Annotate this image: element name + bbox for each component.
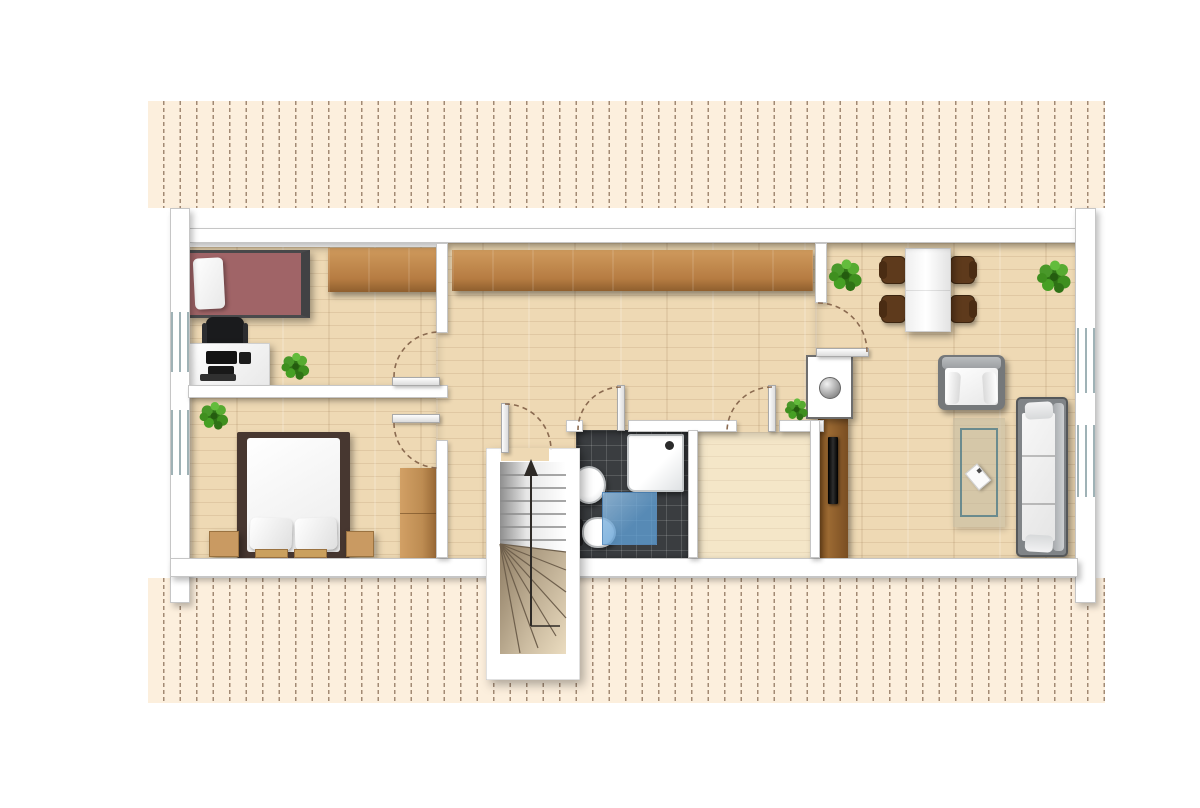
roof-slope-hatch-bottom bbox=[148, 578, 1105, 703]
bed-pillow-right bbox=[294, 517, 337, 550]
desk bbox=[186, 343, 270, 386]
plant-dining-right bbox=[1034, 256, 1074, 298]
tv-panel bbox=[818, 418, 848, 558]
plant-master-bedroom bbox=[197, 399, 231, 433]
wall-bath-top-1 bbox=[566, 420, 583, 432]
armchair-pillow-right bbox=[982, 372, 998, 405]
plant-kids-room bbox=[279, 350, 312, 383]
office-chair-armrest-left bbox=[202, 323, 207, 345]
double-bed bbox=[237, 432, 350, 558]
wall-storage-right bbox=[810, 420, 820, 558]
plant-dining-left bbox=[826, 255, 865, 296]
headboard-slat-left bbox=[255, 549, 288, 558]
bathroom-door bbox=[617, 385, 625, 431]
office-chair-armrest-right bbox=[243, 323, 248, 345]
dining-chair-bottom-right bbox=[950, 295, 975, 323]
plant-icon bbox=[279, 350, 312, 383]
left-window-1 bbox=[171, 312, 189, 372]
shower-tray bbox=[627, 434, 684, 492]
roof-slope-hatch-top bbox=[148, 101, 1105, 208]
headboard-slat-right bbox=[294, 549, 327, 558]
dining-chair-top-right bbox=[950, 256, 975, 284]
bedroom-top-door bbox=[392, 377, 440, 386]
plant-icon bbox=[1034, 256, 1074, 298]
nightstand-right bbox=[346, 531, 374, 557]
nightstand-left bbox=[209, 531, 239, 557]
flat-tv bbox=[828, 437, 838, 504]
computer-speaker bbox=[239, 352, 251, 364]
dining-chair-bottom-left bbox=[881, 295, 906, 323]
winder-staircase bbox=[486, 448, 580, 680]
single-bed bbox=[188, 250, 310, 318]
stairwell-door bbox=[501, 403, 509, 453]
living-room-door bbox=[816, 348, 869, 357]
keyboard bbox=[206, 351, 237, 364]
rug bbox=[953, 418, 1005, 527]
remote-control bbox=[976, 468, 982, 474]
bedroom-bottom-door bbox=[392, 414, 440, 423]
floor-storage-room bbox=[698, 432, 812, 558]
wall-bedroom-separator bbox=[188, 385, 448, 398]
wall-bottom bbox=[170, 558, 1078, 577]
chimney bbox=[806, 355, 853, 419]
sofa-seat-divider-2 bbox=[1022, 503, 1055, 505]
wall-bath-right bbox=[688, 430, 698, 558]
right-window-2 bbox=[1077, 425, 1095, 497]
wardrobe-divider bbox=[400, 513, 437, 514]
wall-right bbox=[1075, 208, 1096, 603]
plant-icon bbox=[197, 399, 231, 433]
sofa-seat-divider-1 bbox=[1022, 455, 1055, 457]
sofa-pillow-top bbox=[1025, 401, 1054, 419]
armchair bbox=[938, 355, 1005, 410]
bed-pillow bbox=[193, 257, 226, 310]
wardrobe-master-bedroom bbox=[400, 468, 437, 558]
built-in-wardrobe-hallway bbox=[452, 250, 813, 291]
sofa-seats bbox=[1022, 413, 1055, 541]
plant-icon bbox=[826, 255, 865, 296]
wall-kids-room-right bbox=[436, 243, 448, 333]
left-window-2 bbox=[171, 410, 189, 475]
stairwell bbox=[486, 448, 580, 680]
right-window-1 bbox=[1077, 328, 1095, 393]
wall-master-room-right bbox=[436, 440, 448, 558]
plant-icon bbox=[783, 396, 810, 423]
dining-chair-top-left bbox=[881, 256, 906, 284]
dining-table bbox=[905, 248, 951, 332]
bed-pillow-left bbox=[249, 517, 292, 550]
plant-hallway bbox=[783, 396, 810, 423]
wall-left bbox=[170, 208, 190, 603]
sofa-pillow-bottom bbox=[1025, 534, 1054, 552]
sofa bbox=[1016, 397, 1068, 557]
wall-top bbox=[188, 228, 1078, 243]
armchair-pillow-left bbox=[945, 372, 961, 405]
table-seam bbox=[906, 290, 950, 291]
bath-mat bbox=[602, 492, 657, 545]
wall-bath-top-2 bbox=[628, 420, 737, 432]
storage-door bbox=[768, 385, 776, 432]
shower-drain bbox=[665, 441, 674, 450]
chimney-flue bbox=[819, 377, 841, 399]
wardrobe-kids-room bbox=[328, 248, 436, 292]
monitor-stand bbox=[200, 374, 236, 381]
floor-plan-canvas bbox=[0, 0, 1200, 808]
